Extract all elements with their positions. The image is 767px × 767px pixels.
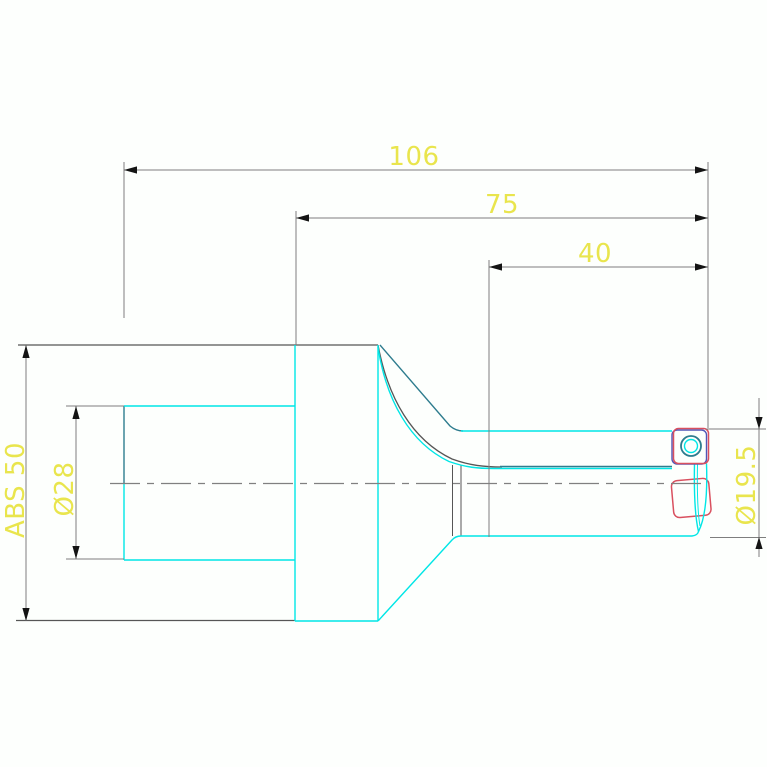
peripheral-insert	[674, 429, 709, 464]
flute-diagonal-far	[380, 345, 463, 431]
arrow-d28-bottom	[72, 546, 79, 559]
dimension-lines	[26, 162, 766, 621]
part-outline-gray	[16, 345, 502, 621]
insert-screw-hole-inner	[685, 440, 698, 453]
arrow-abs50-bottom	[22, 608, 29, 621]
dim-75-label: 75	[485, 190, 519, 220]
arrow-40-left	[489, 263, 502, 270]
peripheral-insert-group	[672, 429, 709, 465]
arrow-abs50-top	[22, 345, 29, 358]
arrow-d195-bottom	[755, 537, 762, 549]
part-teal-lines	[124, 345, 672, 483]
dim-d28-label: Ø28	[50, 461, 80, 516]
dim-abs50-label: ABS 50	[1, 442, 31, 538]
cad-drawing-canvas: 106 75 40 ABS 50 Ø28 Ø19.5	[0, 0, 767, 767]
dimension-labels: 106 75 40 ABS 50 Ø28 Ø19.5	[1, 142, 762, 538]
arrow-106-right	[695, 166, 708, 173]
bottom-chamfer	[378, 536, 461, 621]
dim-d195-label: Ø19.5	[732, 445, 762, 526]
neck-bottom-edge	[461, 532, 699, 537]
arrow-75-left	[296, 214, 309, 221]
dim-40-label: 40	[578, 239, 612, 269]
arrow-75-right	[695, 214, 708, 221]
arrow-d195-top	[755, 417, 762, 429]
arrow-106-left	[124, 166, 137, 173]
dim-106-label: 106	[388, 142, 439, 172]
arrow-d28-top	[72, 406, 79, 419]
technical-drawing: 106 75 40 ABS 50 Ø28 Ø19.5	[0, 0, 767, 767]
arrow-40-right	[695, 263, 708, 270]
